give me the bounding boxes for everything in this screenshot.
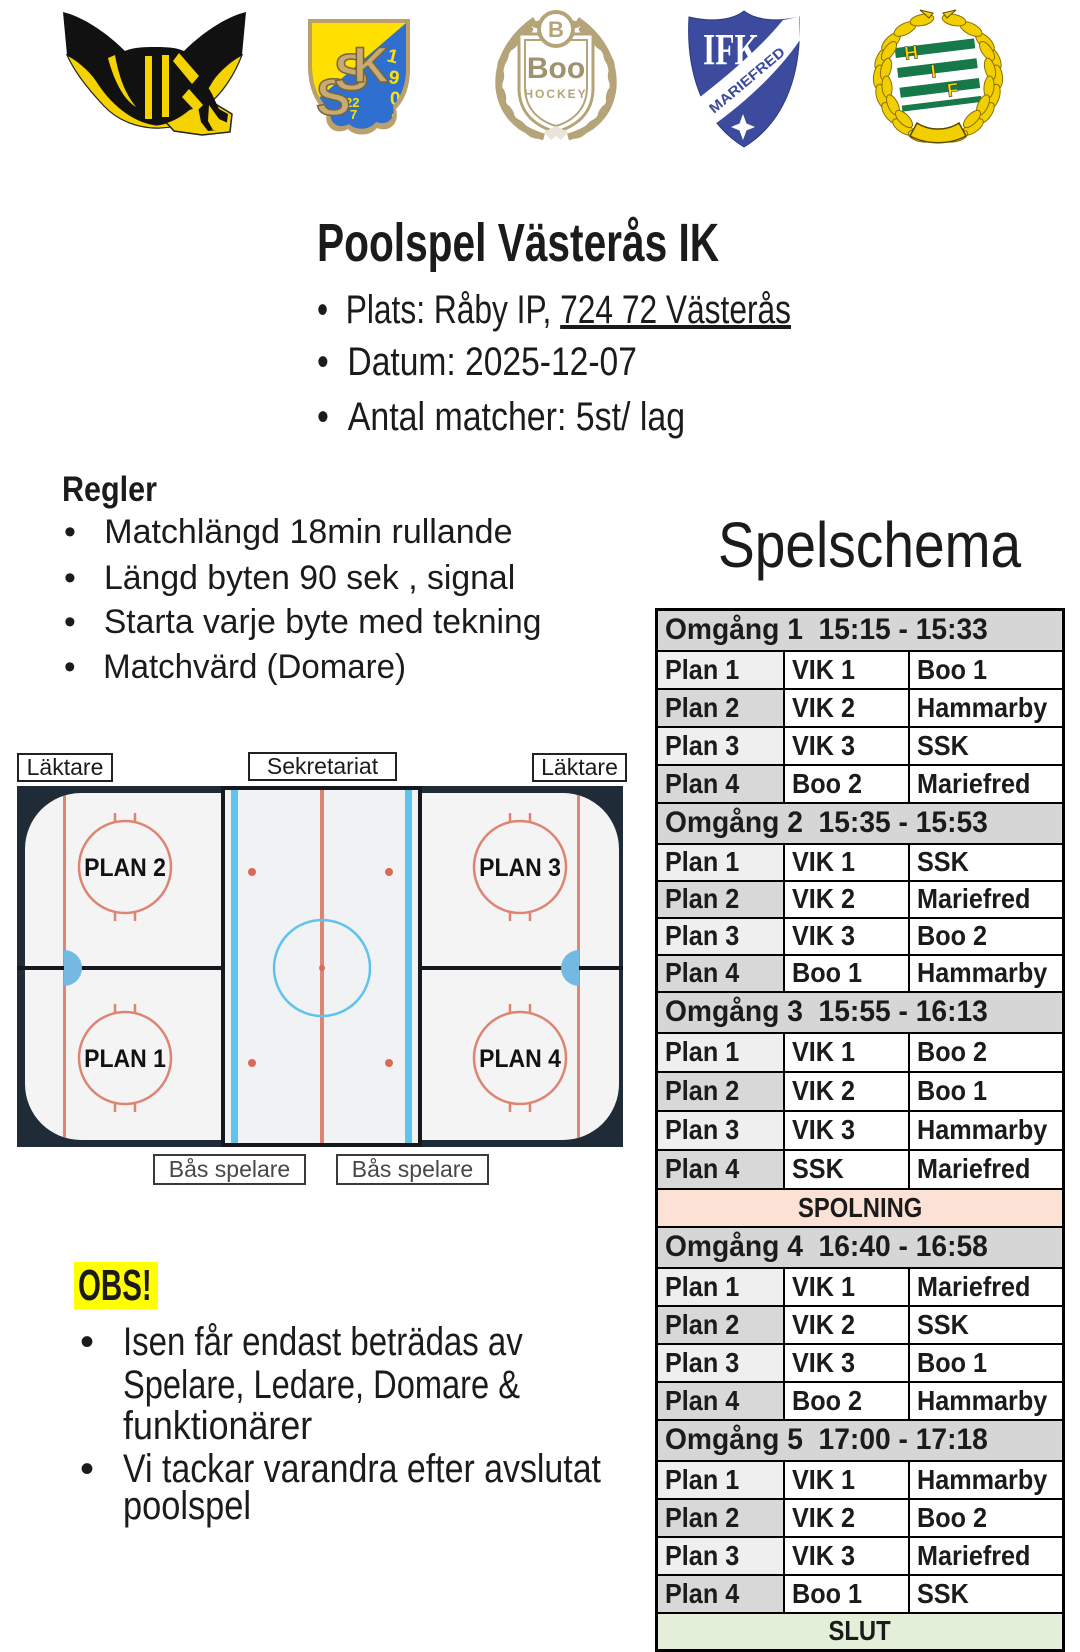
svg-text:PLAN 3: PLAN 3 [479,854,561,882]
svg-text:7: 7 [350,107,357,122]
svg-text:K: K [353,37,389,93]
svg-text:Boo: Boo [527,52,585,85]
svg-text:PLAN 1: PLAN 1 [84,1045,166,1073]
svg-text:B: B [548,17,564,42]
svg-text:PLAN 4: PLAN 4 [479,1045,561,1073]
svg-text:PLAN 2: PLAN 2 [84,854,166,882]
svg-text:HOCKEY: HOCKEY [524,87,587,101]
svg-text:H: H [903,42,919,65]
